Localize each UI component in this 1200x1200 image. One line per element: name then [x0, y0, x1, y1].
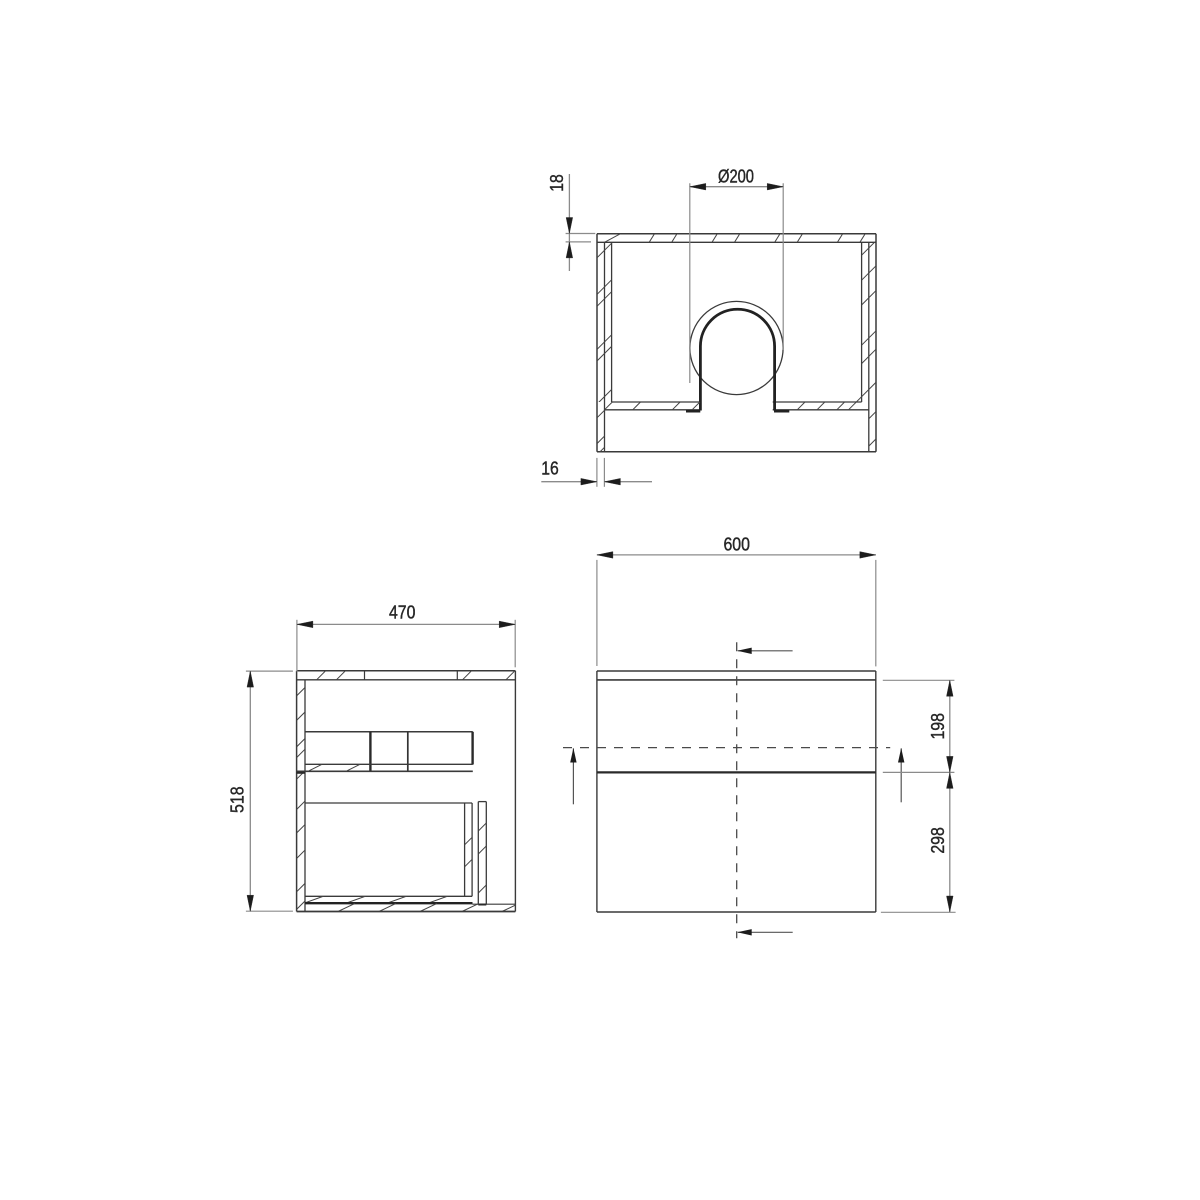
svg-text:198: 198	[927, 713, 948, 740]
svg-text:470: 470	[389, 602, 416, 623]
svg-text:Ø200: Ø200	[718, 166, 754, 187]
svg-text:298: 298	[927, 827, 948, 854]
svg-text:518: 518	[226, 786, 247, 813]
svg-text:600: 600	[723, 533, 750, 554]
svg-text:16: 16	[541, 457, 559, 478]
svg-text:18: 18	[546, 174, 567, 192]
